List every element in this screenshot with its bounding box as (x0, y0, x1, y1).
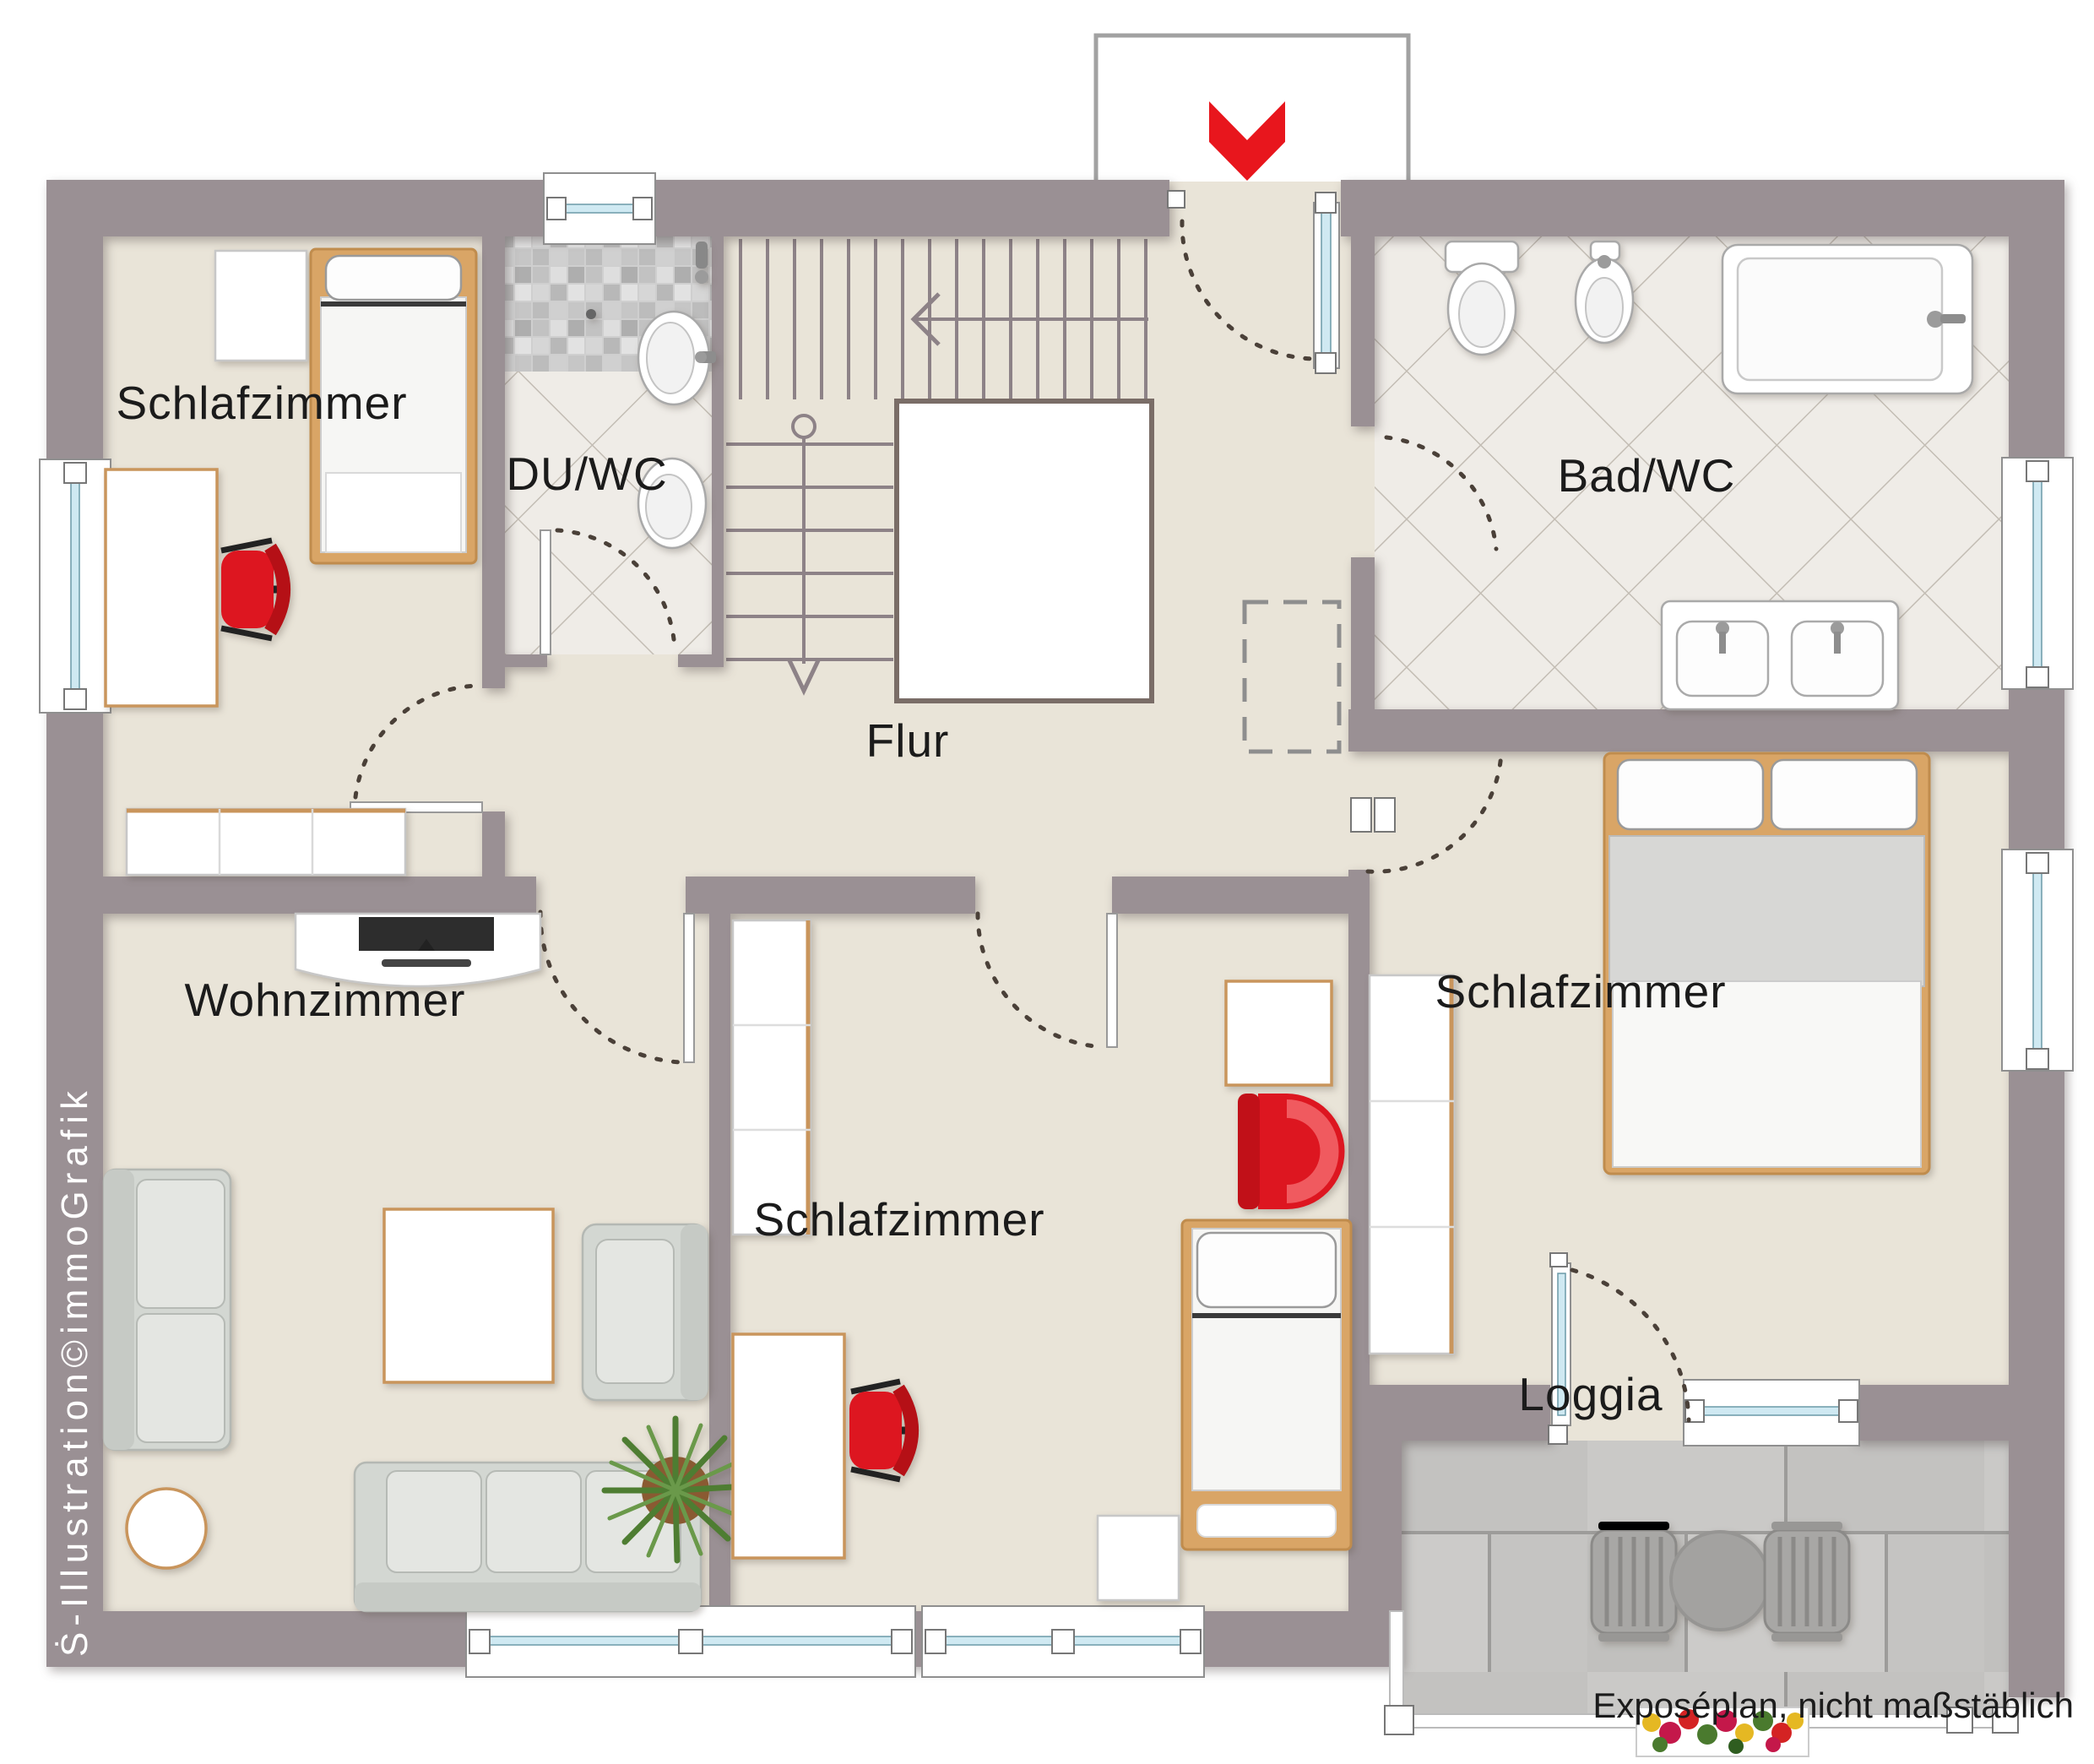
single-bed (1182, 1220, 1351, 1550)
window (922, 1606, 1204, 1677)
loggia-table-rug (1671, 1532, 1769, 1630)
room-label-loggia: Loggia (1518, 1368, 1663, 1420)
nightstand (1098, 1516, 1179, 1600)
window (1684, 1380, 1859, 1446)
stair-void (897, 401, 1152, 701)
entrance-recess (1096, 34, 1408, 182)
office-chair (221, 540, 290, 638)
bathtub (1722, 245, 1972, 394)
toilet (1446, 242, 1518, 355)
room-label-schlafzimmer-1: Schlafzimmer (116, 377, 407, 429)
wardrobe (733, 920, 811, 1235)
double-sink-vanity (1662, 601, 1898, 709)
footer-note: Exposéplan, nicht maßstäblich (1592, 1685, 2074, 1725)
room-label-du-wc: DU/WC (506, 448, 667, 500)
window (2002, 458, 2073, 689)
entrance-sidelight-window (1314, 193, 1339, 373)
side-table (1226, 981, 1332, 1085)
sofa-2-seat (104, 1170, 231, 1450)
coffee-table (384, 1209, 553, 1382)
armchair (583, 1224, 708, 1400)
window (544, 173, 655, 244)
plant (605, 1419, 747, 1560)
window (40, 459, 111, 713)
watermark: Ṡ-Illustration©immoGrafik (54, 1085, 95, 1657)
side-table-round (127, 1489, 206, 1568)
room-label-schlafzimmer-3: Schlafzimmer (1435, 965, 1726, 1018)
office-chair (849, 1381, 919, 1479)
floor-plan: Schlafzimmer DU/WC Bad/WC Flur Wohnzimme… (0, 0, 2094, 1764)
loggia-chair (1592, 1522, 1676, 1642)
double-bed (1604, 753, 1929, 1174)
room-label-wohnzimmer: Wohnzimmer (185, 974, 466, 1026)
window (2002, 849, 2073, 1071)
desk (106, 469, 217, 706)
shelf (215, 251, 307, 361)
room-label-schlafzimmer-2: Schlafzimmer (753, 1193, 1044, 1246)
wardrobe (1370, 975, 1454, 1354)
sideboard (127, 809, 405, 875)
window (466, 1606, 915, 1677)
room-label-flur: Flur (866, 714, 950, 767)
desk (733, 1334, 844, 1558)
loggia-chair (1765, 1522, 1849, 1642)
floor-plan-page: Schlafzimmer DU/WC Bad/WC Flur Wohnzimme… (0, 0, 2094, 1764)
room-du-wc-floor (505, 236, 712, 654)
room-label-bad-wc: Bad/WC (1558, 449, 1736, 502)
